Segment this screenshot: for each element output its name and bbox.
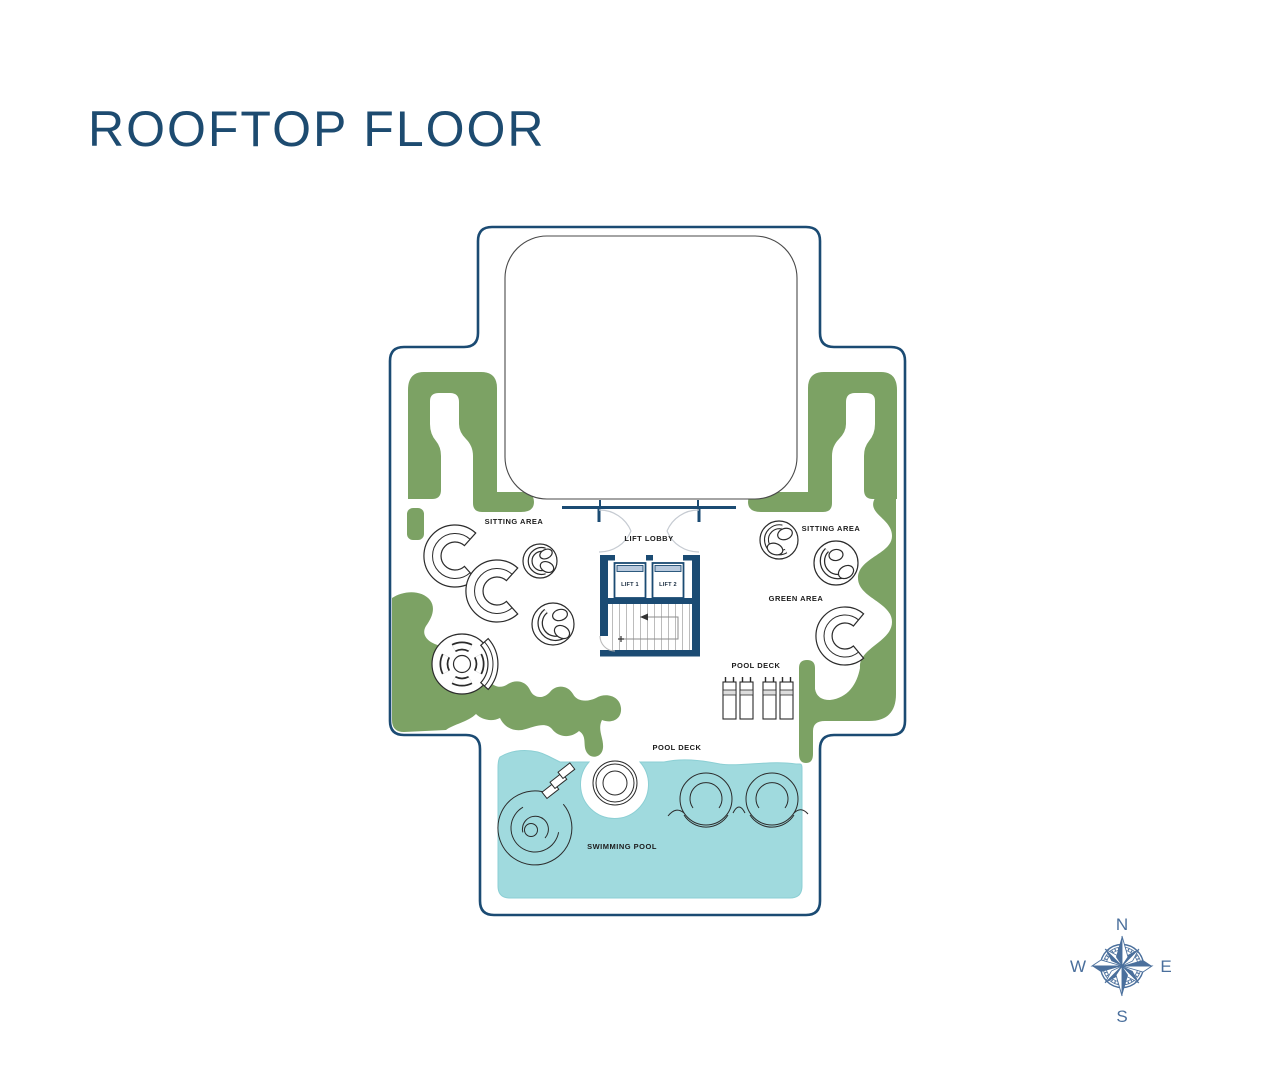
green-stub-left — [407, 508, 424, 540]
compass-north-label: N — [1116, 915, 1128, 934]
round-table — [523, 544, 557, 578]
sitting-area-right-label: SITTING AREA — [802, 524, 861, 533]
lift-2-label: LIFT 2 — [659, 582, 677, 588]
sitting-area-left-label: SITTING AREA — [485, 517, 544, 526]
sun-lounger — [763, 677, 776, 719]
roof-structure — [505, 236, 797, 499]
floor-plan-canvas: LIFT LOBBY LIFT 1 LIFT 2 — [0, 0, 1271, 1080]
compass-east-label: E — [1160, 957, 1171, 976]
stairs — [600, 604, 692, 651]
swimming-pool-label: SWIMMING POOL — [587, 842, 657, 851]
compass-rose: N E S W — [1070, 915, 1172, 1026]
green-area-label: GREEN AREA — [769, 594, 824, 603]
sun-lounger — [723, 677, 736, 719]
pool-water — [498, 751, 802, 899]
pool-deck-upper-label: POOL DECK — [732, 661, 781, 670]
swimming-pool — [498, 751, 808, 899]
round-table — [760, 521, 798, 559]
round-table — [532, 603, 574, 645]
lift-lobby-label: LIFT LOBBY — [624, 534, 673, 543]
pool-deck-lower-label: POOL DECK — [653, 743, 702, 752]
compass-south-label: S — [1116, 1007, 1127, 1026]
sun-lounger — [740, 677, 753, 719]
round-table — [814, 541, 858, 585]
page: ROOFTOP FLOOR — [0, 0, 1271, 1080]
sun-lounger — [780, 677, 793, 719]
compass-west-label: W — [1070, 957, 1086, 976]
lift-1: LIFT 1 — [615, 563, 646, 598]
lift-1-label: LIFT 1 — [621, 582, 639, 588]
lift-2: LIFT 2 — [653, 563, 684, 598]
